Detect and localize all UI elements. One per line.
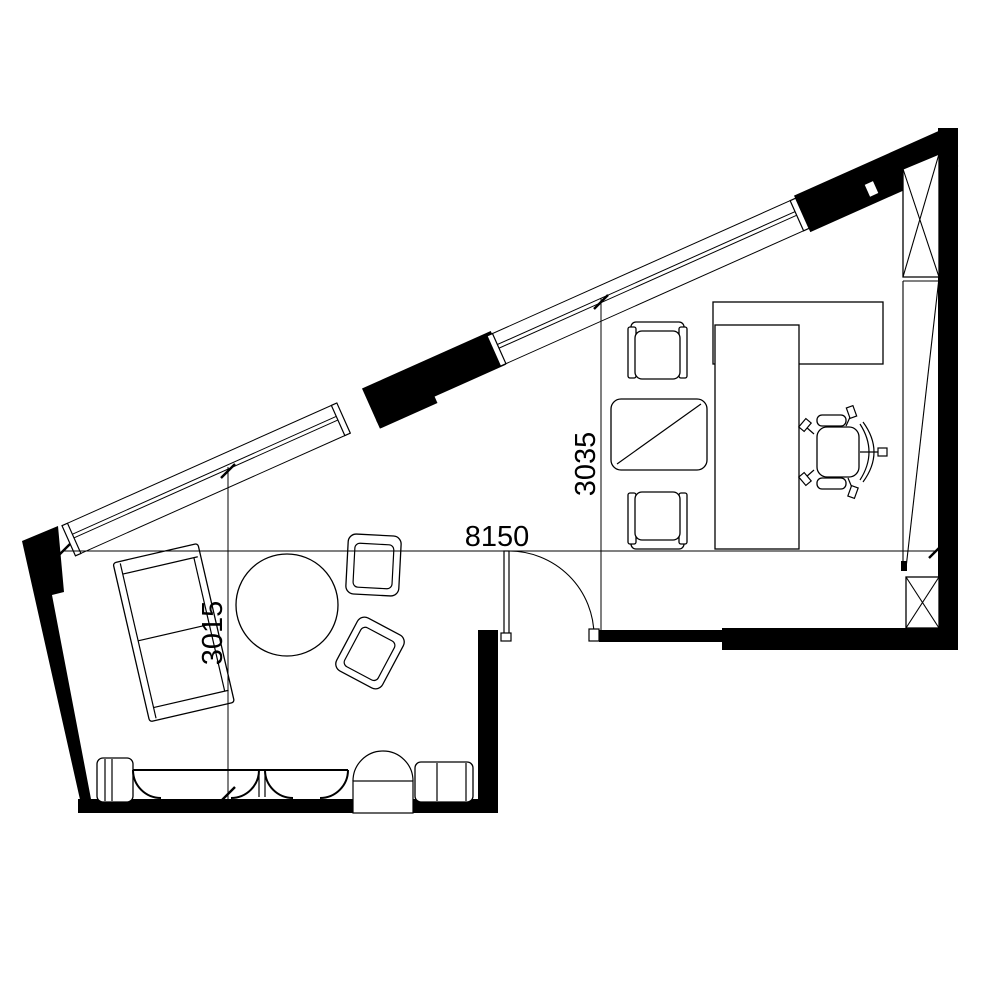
- desk: [713, 302, 883, 549]
- bench-right-end: [415, 762, 473, 802]
- lounge-right-wall: [478, 630, 498, 813]
- window-band-left: [62, 403, 350, 556]
- door-leaf: [504, 551, 509, 634]
- office-bottom-wall: [599, 630, 722, 642]
- floor-plan-canvas: 8150 3015 3035: [0, 0, 1000, 999]
- dimension-label-3015: 3015: [197, 601, 229, 666]
- bench-seat-curve: [320, 770, 348, 798]
- window-pier-middle: [362, 331, 509, 429]
- armchair-lower: [333, 614, 407, 691]
- window-end-cap: [331, 403, 350, 436]
- bench-arch-niche: [353, 751, 413, 813]
- bench-seat-curve: [231, 770, 259, 798]
- armchair-upper: [345, 534, 401, 597]
- left-exterior-wall: [22, 526, 91, 813]
- door-hinge-jamb: [501, 633, 511, 641]
- door-swing-arc: [509, 551, 594, 636]
- chair-armrest: [817, 478, 846, 489]
- bench-left-end: [97, 758, 133, 802]
- door-strike-jamb: [589, 629, 599, 641]
- caster-wheel: [878, 448, 887, 456]
- right-wall-inner-face-lines: [901, 278, 939, 571]
- caster-wheel: [848, 486, 858, 499]
- door: [501, 551, 599, 641]
- meeting-table: [611, 399, 707, 470]
- bench-seat-curve: [265, 770, 293, 798]
- chair-armrest: [817, 415, 846, 426]
- caster-wheel: [846, 406, 856, 419]
- column-x-brace-top: [903, 154, 939, 281]
- dimension-3035: 3035: [570, 295, 608, 630]
- dimension-3015: 3015: [197, 464, 235, 801]
- bench-seat-curve: [133, 770, 161, 798]
- tub-chair-upper: [628, 322, 687, 379]
- round-coffee-table: [236, 554, 338, 656]
- dimension-label-3035: 3035: [570, 432, 602, 497]
- tub-chair-lower: [628, 492, 687, 549]
- column-x-brace-bottom: [906, 577, 939, 628]
- office-task-chair: [799, 406, 887, 499]
- dimension-label-8150: 8150: [465, 521, 530, 553]
- chair-seat: [817, 427, 859, 477]
- floor-plan-drawing: 8150 3015 3035: [0, 0, 1000, 999]
